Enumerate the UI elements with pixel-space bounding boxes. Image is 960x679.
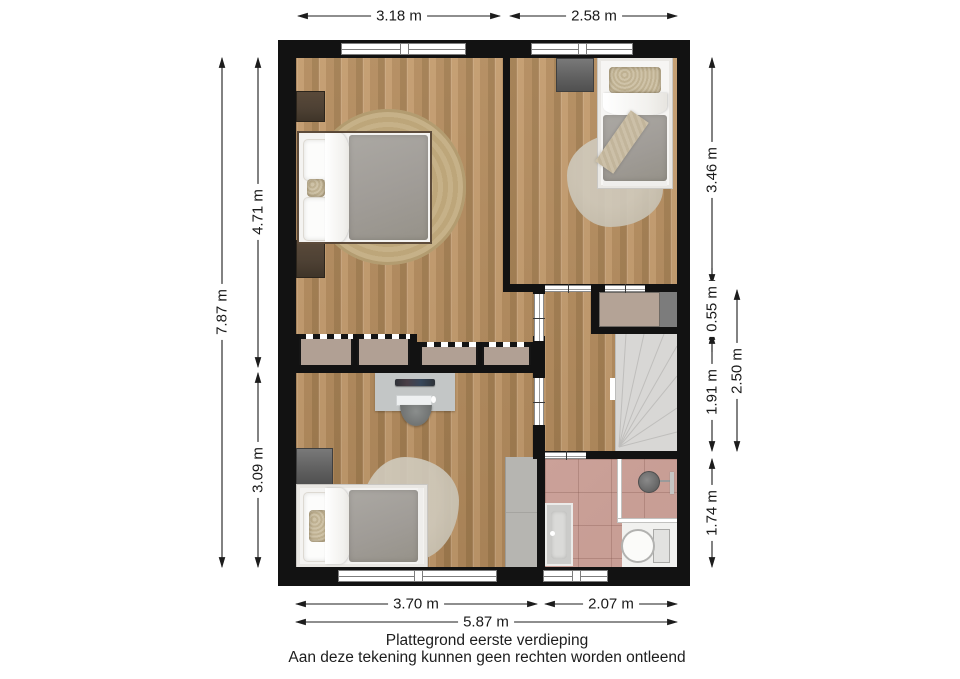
dimension-lines [0, 0, 960, 679]
dim-label-right-3: 1.91 m [704, 364, 721, 420]
dim-label-top-right: 2.58 m [566, 8, 622, 25]
dim-label-left-lower: 3.09 m [250, 442, 267, 498]
dim-label-bottom-right: 2.07 m [583, 596, 639, 613]
dim-label-right-2: 0.55 m [704, 281, 721, 337]
dim-label-left-total: 7.87 m [214, 284, 231, 340]
dim-label-right-4: 1.74 m [704, 485, 721, 541]
dim-label-right-1: 3.46 m [704, 142, 721, 198]
caption: Plattegrond eerste verdieping Aan deze t… [288, 632, 685, 666]
dim-label-bottom-total: 5.87 m [458, 614, 514, 631]
dim-label-bottom-left: 3.70 m [388, 596, 444, 613]
caption-disclaimer: Aan deze tekening kunnen geen rechten wo… [288, 649, 685, 666]
dim-label-right-outer: 2.50 m [729, 343, 746, 399]
caption-title: Plattegrond eerste verdieping [288, 632, 685, 649]
dim-label-left-upper: 4.71 m [250, 184, 267, 240]
dim-label-top-left: 3.18 m [371, 8, 427, 25]
floorplan-canvas: 3.18 m 2.58 m 7.87 m 4.71 m 3.09 m 3.46 … [0, 0, 960, 679]
